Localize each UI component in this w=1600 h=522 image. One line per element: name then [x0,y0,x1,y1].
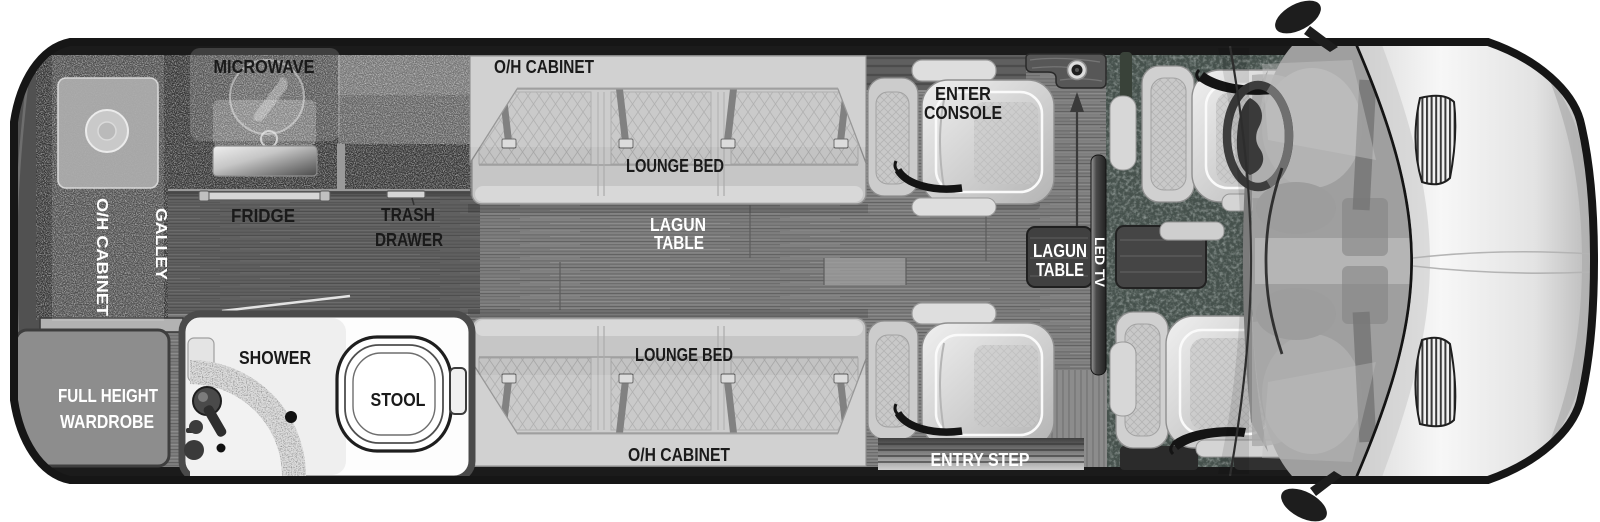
svg-text:LOUNGE BED: LOUNGE BED [635,345,733,365]
svg-text:O/H CABINET: O/H CABINET [93,198,110,317]
svg-text:TABLE: TABLE [1036,260,1084,280]
svg-text:TRASH: TRASH [381,205,435,225]
svg-text:ENTER: ENTER [935,84,991,104]
svg-text:MICROWAVE: MICROWAVE [214,57,315,77]
svg-text:GALLEY: GALLEY [152,208,169,281]
svg-text:WARDROBE: WARDROBE [60,412,154,432]
svg-text:LED TV: LED TV [1092,237,1107,287]
svg-text:LAGUN: LAGUN [650,215,706,235]
svg-text:TABLE: TABLE [654,233,704,253]
svg-text:STOOL: STOOL [371,390,426,410]
svg-text:SHOWER: SHOWER [239,348,311,368]
svg-text:ENTRY STEP: ENTRY STEP [931,450,1030,470]
svg-text:CONSOLE: CONSOLE [924,103,1002,123]
svg-text:FULL HEIGHT: FULL HEIGHT [58,386,158,406]
svg-text:O/H CABINET: O/H CABINET [494,57,594,77]
svg-text:LOUNGE BED: LOUNGE BED [626,156,724,176]
svg-text:DRAWER: DRAWER [375,230,443,250]
svg-text:LAGUN: LAGUN [1033,241,1087,261]
svg-text:FRIDGE: FRIDGE [231,206,295,226]
svg-text:O/H CABINET: O/H CABINET [628,445,730,465]
